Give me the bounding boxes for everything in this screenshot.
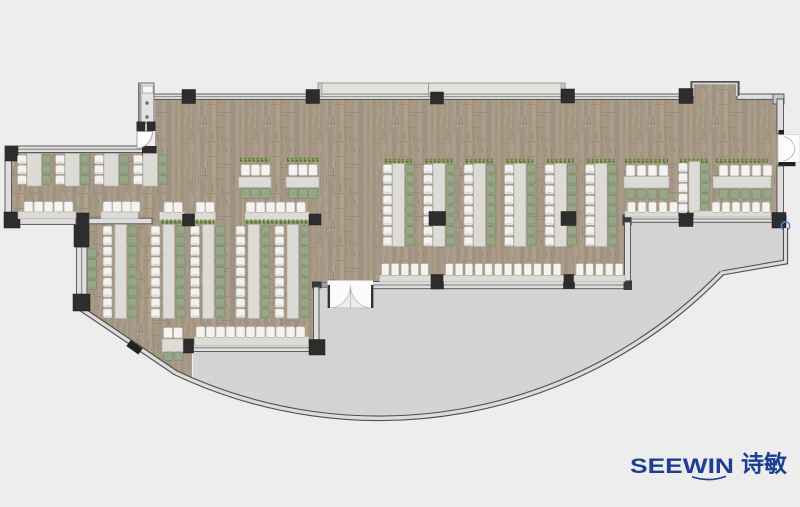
svg-text:SEEWIN: SEEWIN: [630, 454, 734, 477]
svg-text:诗敏: 诗敏: [741, 451, 787, 477]
